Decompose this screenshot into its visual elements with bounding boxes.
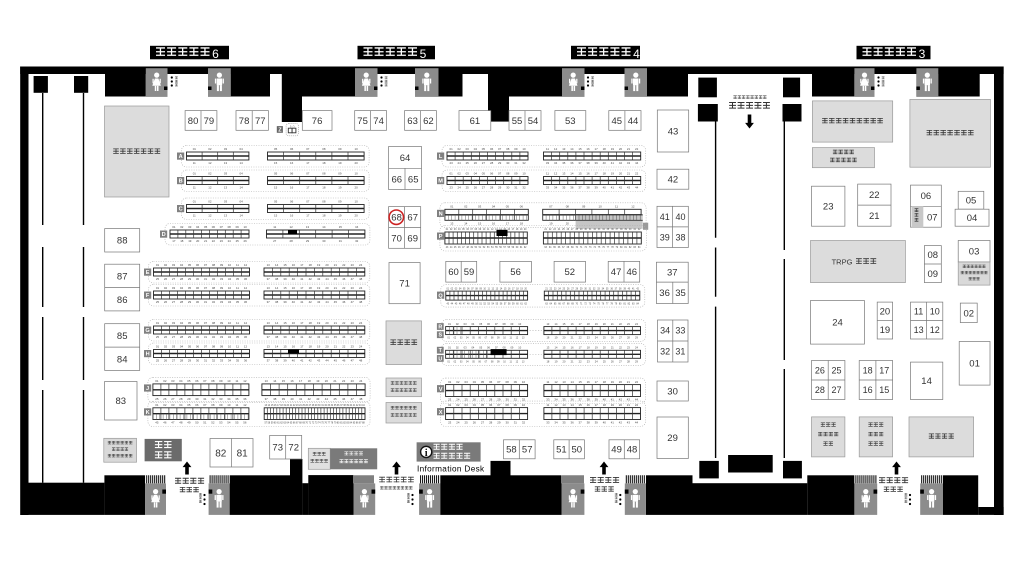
svg-text:N: N xyxy=(439,212,443,218)
svg-text:10: 10 xyxy=(228,286,232,290)
svg-text:12: 12 xyxy=(243,403,247,407)
svg-text:01: 01 xyxy=(156,345,160,349)
svg-text:13: 13 xyxy=(267,263,271,267)
svg-text:41: 41 xyxy=(660,212,670,222)
svg-text:S: S xyxy=(438,333,442,339)
svg-text:28: 28 xyxy=(180,335,184,339)
svg-text:15: 15 xyxy=(282,379,286,383)
svg-text:06: 06 xyxy=(290,172,294,176)
svg-text:41: 41 xyxy=(611,186,615,190)
svg-text:28: 28 xyxy=(489,421,493,425)
svg-text:14: 14 xyxy=(239,186,243,190)
svg-text:3: 3 xyxy=(919,47,926,61)
svg-text:01: 01 xyxy=(155,403,159,407)
svg-text:25: 25 xyxy=(831,366,841,376)
svg-text:47: 47 xyxy=(351,397,355,401)
svg-text:06: 06 xyxy=(490,147,494,151)
svg-text:08: 08 xyxy=(322,147,326,151)
svg-text:29: 29 xyxy=(497,421,501,425)
svg-text:28: 28 xyxy=(289,239,293,243)
svg-text:05: 05 xyxy=(966,196,977,207)
svg-text:27: 27 xyxy=(273,239,277,243)
svg-text:13: 13 xyxy=(267,321,271,325)
svg-text:19: 19 xyxy=(611,172,615,176)
svg-text:56: 56 xyxy=(510,267,521,278)
svg-text:04: 04 xyxy=(492,205,496,209)
svg-text:70: 70 xyxy=(391,233,402,244)
svg-text:25: 25 xyxy=(155,397,159,401)
svg-text:18: 18 xyxy=(180,239,184,243)
svg-text:41: 41 xyxy=(299,397,303,401)
svg-text:39: 39 xyxy=(283,335,287,339)
svg-text:44: 44 xyxy=(325,397,329,401)
svg-text:22: 22 xyxy=(635,147,639,151)
svg-text:10: 10 xyxy=(930,307,940,317)
svg-text:08: 08 xyxy=(212,286,216,290)
svg-text:39: 39 xyxy=(283,277,287,281)
svg-text:20: 20 xyxy=(619,380,623,384)
svg-text:12: 12 xyxy=(930,325,940,335)
svg-text:05: 05 xyxy=(187,379,191,383)
svg-text:10: 10 xyxy=(227,403,231,407)
svg-text:31: 31 xyxy=(514,186,518,190)
svg-text:40: 40 xyxy=(603,421,607,425)
svg-text:Q: Q xyxy=(438,293,443,299)
svg-text:03: 03 xyxy=(466,147,470,151)
svg-text:23: 23 xyxy=(351,286,355,290)
svg-text:07: 07 xyxy=(927,213,938,224)
svg-text:34: 34 xyxy=(660,326,670,336)
svg-text:01: 01 xyxy=(193,200,197,204)
svg-text:08: 08 xyxy=(506,172,510,176)
svg-text:19: 19 xyxy=(188,239,192,243)
svg-text:04: 04 xyxy=(239,147,243,151)
svg-text:15: 15 xyxy=(578,380,582,384)
svg-text:48: 48 xyxy=(359,359,363,363)
svg-text:33: 33 xyxy=(220,277,224,281)
svg-text:56: 56 xyxy=(243,421,247,425)
svg-text:05: 05 xyxy=(506,205,510,209)
svg-text:46: 46 xyxy=(342,335,346,339)
svg-text:24: 24 xyxy=(228,239,232,243)
svg-text:33: 33 xyxy=(219,397,223,401)
svg-text:20: 20 xyxy=(196,239,200,243)
svg-text:02: 02 xyxy=(457,147,461,151)
svg-text:27: 27 xyxy=(481,421,485,425)
svg-text:45: 45 xyxy=(334,300,338,304)
svg-text:10: 10 xyxy=(227,379,231,383)
svg-text:05: 05 xyxy=(482,172,486,176)
svg-text:03: 03 xyxy=(224,147,228,151)
svg-text:08: 08 xyxy=(212,263,216,267)
svg-text:12: 12 xyxy=(244,263,248,267)
svg-text:13: 13 xyxy=(265,379,269,383)
svg-text:33: 33 xyxy=(546,421,550,425)
svg-text:35: 35 xyxy=(236,277,240,281)
svg-text:74: 74 xyxy=(373,116,384,127)
svg-text:38: 38 xyxy=(275,335,279,339)
svg-text:27: 27 xyxy=(482,161,486,165)
svg-text:29: 29 xyxy=(306,239,310,243)
svg-text:03: 03 xyxy=(969,247,980,258)
svg-text:01: 01 xyxy=(448,403,452,407)
svg-text:21: 21 xyxy=(627,380,631,384)
svg-text:16: 16 xyxy=(290,379,294,383)
svg-text:H: H xyxy=(146,352,150,358)
svg-text:04: 04 xyxy=(967,213,978,224)
svg-text:06: 06 xyxy=(921,191,932,202)
svg-text:21: 21 xyxy=(627,147,631,151)
svg-text:18: 18 xyxy=(603,403,607,407)
svg-text:43: 43 xyxy=(317,335,321,339)
svg-text:06: 06 xyxy=(196,286,200,290)
svg-text:04: 04 xyxy=(180,263,184,267)
svg-text:24: 24 xyxy=(359,263,363,267)
svg-text:30: 30 xyxy=(506,161,510,165)
svg-text:19: 19 xyxy=(316,379,320,383)
svg-text:20: 20 xyxy=(619,403,623,407)
svg-text:28: 28 xyxy=(815,385,825,395)
svg-text:30: 30 xyxy=(196,300,200,304)
svg-text:24: 24 xyxy=(457,161,461,165)
svg-text:25: 25 xyxy=(156,300,160,304)
svg-text:40: 40 xyxy=(292,335,296,339)
svg-text:67: 67 xyxy=(407,212,418,223)
svg-text:15: 15 xyxy=(283,263,287,267)
svg-text:06: 06 xyxy=(195,379,199,383)
svg-text:35: 35 xyxy=(562,421,566,425)
svg-text:12: 12 xyxy=(554,403,558,407)
svg-text:11: 11 xyxy=(193,186,196,190)
svg-text:47: 47 xyxy=(611,267,622,278)
svg-text:07: 07 xyxy=(220,225,224,229)
svg-text:31: 31 xyxy=(675,347,685,357)
svg-text:52: 52 xyxy=(211,421,215,425)
svg-text:46: 46 xyxy=(342,359,346,363)
svg-text:06: 06 xyxy=(290,200,294,204)
svg-text:42: 42 xyxy=(619,161,623,165)
svg-text:02: 02 xyxy=(163,379,167,383)
svg-text:11: 11 xyxy=(546,172,549,176)
svg-text:14: 14 xyxy=(570,403,574,407)
svg-text:01: 01 xyxy=(156,286,160,290)
svg-text:30: 30 xyxy=(196,359,200,363)
svg-text:10: 10 xyxy=(522,147,526,151)
svg-text:39: 39 xyxy=(594,186,598,190)
svg-text:27: 27 xyxy=(172,335,176,339)
svg-text:24: 24 xyxy=(832,318,843,329)
svg-text:23: 23 xyxy=(220,239,224,243)
svg-text:65: 65 xyxy=(408,175,419,186)
svg-text:28: 28 xyxy=(180,359,184,363)
svg-text:17: 17 xyxy=(300,321,304,325)
svg-text:03: 03 xyxy=(171,403,175,407)
svg-text:29: 29 xyxy=(188,300,192,304)
svg-text:20: 20 xyxy=(325,286,329,290)
svg-text:22: 22 xyxy=(342,345,346,349)
svg-text:30: 30 xyxy=(196,335,200,339)
svg-text:11: 11 xyxy=(914,307,923,317)
svg-text:39: 39 xyxy=(595,421,599,425)
svg-text:43: 43 xyxy=(317,300,321,304)
svg-text:09: 09 xyxy=(514,172,518,176)
svg-text:60: 60 xyxy=(448,267,459,278)
svg-text:33: 33 xyxy=(546,161,550,165)
svg-text:87: 87 xyxy=(117,271,128,282)
svg-text:28: 28 xyxy=(179,397,183,401)
svg-text:36: 36 xyxy=(659,288,670,299)
svg-text:55: 55 xyxy=(235,421,239,425)
svg-text:09: 09 xyxy=(514,147,518,151)
svg-text:20: 20 xyxy=(354,161,358,165)
svg-text:27: 27 xyxy=(172,300,176,304)
svg-text:02: 02 xyxy=(164,345,168,349)
svg-text:31: 31 xyxy=(514,161,518,165)
svg-text:32: 32 xyxy=(212,300,216,304)
svg-text:18: 18 xyxy=(308,379,312,383)
svg-text:02: 02 xyxy=(164,286,168,290)
svg-text:18: 18 xyxy=(322,186,326,190)
svg-text:12: 12 xyxy=(631,205,635,209)
svg-text:02: 02 xyxy=(208,147,212,151)
svg-text:43: 43 xyxy=(668,126,679,137)
svg-text:44: 44 xyxy=(325,300,329,304)
svg-text:02: 02 xyxy=(208,200,212,204)
svg-text:07: 07 xyxy=(306,200,310,204)
svg-text:52: 52 xyxy=(565,267,576,278)
svg-text:09: 09 xyxy=(220,321,224,325)
svg-text:21: 21 xyxy=(204,239,208,243)
svg-text:22: 22 xyxy=(342,379,346,383)
svg-text:43: 43 xyxy=(316,397,320,401)
svg-text:27: 27 xyxy=(172,359,176,363)
svg-text:23: 23 xyxy=(351,321,355,325)
svg-text:06: 06 xyxy=(520,205,524,209)
svg-text:32: 32 xyxy=(355,239,359,243)
svg-text:35: 35 xyxy=(562,186,566,190)
svg-text:13: 13 xyxy=(267,345,271,349)
svg-text:44: 44 xyxy=(635,421,639,425)
svg-text:18: 18 xyxy=(603,147,607,151)
svg-text:10: 10 xyxy=(598,205,602,209)
svg-text:09: 09 xyxy=(514,403,518,407)
svg-text:38: 38 xyxy=(675,232,685,242)
svg-text:27: 27 xyxy=(172,277,176,281)
svg-text:14: 14 xyxy=(275,321,279,325)
svg-text:01: 01 xyxy=(969,359,980,370)
svg-text:12: 12 xyxy=(554,147,558,151)
svg-text:01: 01 xyxy=(156,263,160,267)
svg-text:26: 26 xyxy=(164,277,168,281)
svg-text:02: 02 xyxy=(164,321,168,325)
svg-text:39: 39 xyxy=(594,161,598,165)
svg-text:07: 07 xyxy=(497,403,501,407)
svg-text:17: 17 xyxy=(172,239,176,243)
svg-text:40: 40 xyxy=(603,161,607,165)
svg-text:13: 13 xyxy=(562,172,566,176)
svg-text:11: 11 xyxy=(546,147,549,151)
svg-text:47: 47 xyxy=(351,277,355,281)
svg-text:09: 09 xyxy=(582,205,586,209)
svg-text:12: 12 xyxy=(554,380,558,384)
svg-text:09: 09 xyxy=(220,345,224,349)
svg-text:16: 16 xyxy=(586,172,590,176)
svg-text:68: 68 xyxy=(391,212,402,223)
svg-text:17: 17 xyxy=(306,186,310,190)
svg-text:14: 14 xyxy=(239,161,243,165)
svg-text:06: 06 xyxy=(196,321,200,325)
svg-text:27: 27 xyxy=(482,186,486,190)
svg-text:10: 10 xyxy=(228,321,232,325)
svg-text:18: 18 xyxy=(309,321,313,325)
svg-text:23: 23 xyxy=(823,202,834,213)
svg-text:20: 20 xyxy=(566,222,570,226)
svg-text:01: 01 xyxy=(449,172,453,176)
svg-text:21: 21 xyxy=(334,263,338,267)
svg-text:20: 20 xyxy=(325,345,329,349)
svg-text:07: 07 xyxy=(203,403,207,407)
svg-text:28: 28 xyxy=(490,161,494,165)
svg-text:20: 20 xyxy=(619,147,623,151)
svg-text:48: 48 xyxy=(359,397,363,401)
svg-text:42: 42 xyxy=(619,421,623,425)
svg-text:10: 10 xyxy=(522,172,526,176)
svg-text:26: 26 xyxy=(164,359,168,363)
svg-text:53: 53 xyxy=(219,421,223,425)
svg-text:13: 13 xyxy=(224,161,228,165)
svg-text:01: 01 xyxy=(193,147,197,151)
svg-text:22: 22 xyxy=(342,286,346,290)
svg-text:30: 30 xyxy=(196,277,200,281)
svg-text:16: 16 xyxy=(587,380,591,384)
svg-text:30: 30 xyxy=(506,186,510,190)
svg-text:16: 16 xyxy=(290,186,294,190)
svg-text:20: 20 xyxy=(325,263,329,267)
svg-text:26: 26 xyxy=(243,239,247,243)
svg-text:15: 15 xyxy=(578,403,582,407)
svg-text:40: 40 xyxy=(292,277,296,281)
svg-text:11: 11 xyxy=(193,214,196,218)
svg-text:06: 06 xyxy=(212,225,216,229)
svg-text:24: 24 xyxy=(359,286,363,290)
svg-text:04: 04 xyxy=(473,403,477,407)
svg-text:6: 6 xyxy=(212,47,219,61)
svg-text:36: 36 xyxy=(244,300,248,304)
svg-text:31: 31 xyxy=(203,397,207,401)
svg-text:47: 47 xyxy=(351,359,355,363)
svg-text:79: 79 xyxy=(204,116,215,127)
svg-text:G: G xyxy=(145,328,149,334)
svg-text:27: 27 xyxy=(481,398,485,402)
svg-text:44: 44 xyxy=(628,116,639,127)
svg-text:34: 34 xyxy=(554,186,558,190)
svg-text:36: 36 xyxy=(570,421,574,425)
svg-text:25: 25 xyxy=(156,277,160,281)
svg-text:37: 37 xyxy=(267,335,271,339)
svg-text:30: 30 xyxy=(195,397,199,401)
svg-text:38: 38 xyxy=(586,186,590,190)
svg-text:45: 45 xyxy=(334,335,338,339)
svg-text:05: 05 xyxy=(188,286,192,290)
svg-text:03: 03 xyxy=(478,205,482,209)
svg-text:22: 22 xyxy=(635,380,639,384)
svg-text:07: 07 xyxy=(498,172,502,176)
svg-text:14: 14 xyxy=(275,345,279,349)
svg-text:12: 12 xyxy=(289,225,293,229)
svg-text:29: 29 xyxy=(498,186,502,190)
svg-text:16: 16 xyxy=(290,161,294,165)
svg-text:07: 07 xyxy=(204,345,208,349)
svg-text:09: 09 xyxy=(219,379,223,383)
svg-text:09: 09 xyxy=(220,286,224,290)
svg-text:41: 41 xyxy=(300,335,304,339)
svg-text:42: 42 xyxy=(668,175,679,186)
svg-text:48: 48 xyxy=(359,277,363,281)
svg-text:13: 13 xyxy=(267,286,271,290)
svg-text:38: 38 xyxy=(273,397,277,401)
svg-text:12: 12 xyxy=(554,172,558,176)
svg-text:15: 15 xyxy=(283,286,287,290)
svg-text:61: 61 xyxy=(470,116,481,127)
svg-text:14: 14 xyxy=(570,172,574,176)
svg-text:04: 04 xyxy=(474,172,478,176)
svg-text:03: 03 xyxy=(464,403,468,407)
svg-text:82: 82 xyxy=(215,448,227,459)
svg-text:02: 02 xyxy=(180,225,184,229)
svg-text:21: 21 xyxy=(334,345,338,349)
svg-text:03: 03 xyxy=(224,172,228,176)
svg-text:35: 35 xyxy=(675,288,686,299)
svg-text:39: 39 xyxy=(283,300,287,304)
svg-text:05: 05 xyxy=(274,172,278,176)
svg-text:50: 50 xyxy=(195,421,199,425)
svg-text:31: 31 xyxy=(204,300,208,304)
svg-text:42: 42 xyxy=(308,397,312,401)
svg-text:D: D xyxy=(162,232,166,238)
svg-text:34: 34 xyxy=(228,277,232,281)
svg-text:14: 14 xyxy=(322,225,326,229)
svg-text:34: 34 xyxy=(228,300,232,304)
svg-text:07: 07 xyxy=(549,205,553,209)
svg-text:09: 09 xyxy=(338,147,342,151)
svg-text:36: 36 xyxy=(244,359,248,363)
svg-text:42: 42 xyxy=(309,335,313,339)
svg-text:07: 07 xyxy=(203,379,207,383)
svg-text:23: 23 xyxy=(449,161,453,165)
svg-text:34: 34 xyxy=(228,335,232,339)
svg-text:24: 24 xyxy=(359,321,363,325)
svg-text:24: 24 xyxy=(359,345,363,349)
svg-text:30: 30 xyxy=(667,386,678,397)
svg-text:05: 05 xyxy=(482,147,486,151)
svg-text:20: 20 xyxy=(354,186,358,190)
svg-text:05: 05 xyxy=(188,321,192,325)
svg-text:27: 27 xyxy=(171,397,175,401)
svg-text:13: 13 xyxy=(562,380,566,384)
svg-text:41: 41 xyxy=(300,300,304,304)
svg-text:05: 05 xyxy=(481,403,485,407)
svg-text:15: 15 xyxy=(274,214,278,218)
svg-text:27: 27 xyxy=(831,385,841,395)
svg-text:29: 29 xyxy=(498,161,502,165)
svg-text:77: 77 xyxy=(255,116,266,127)
svg-text:17: 17 xyxy=(595,403,599,407)
svg-text:47: 47 xyxy=(351,300,355,304)
svg-text:03: 03 xyxy=(171,379,175,383)
svg-text:03: 03 xyxy=(172,321,176,325)
svg-text:11: 11 xyxy=(236,321,239,325)
svg-text:19: 19 xyxy=(338,161,342,165)
